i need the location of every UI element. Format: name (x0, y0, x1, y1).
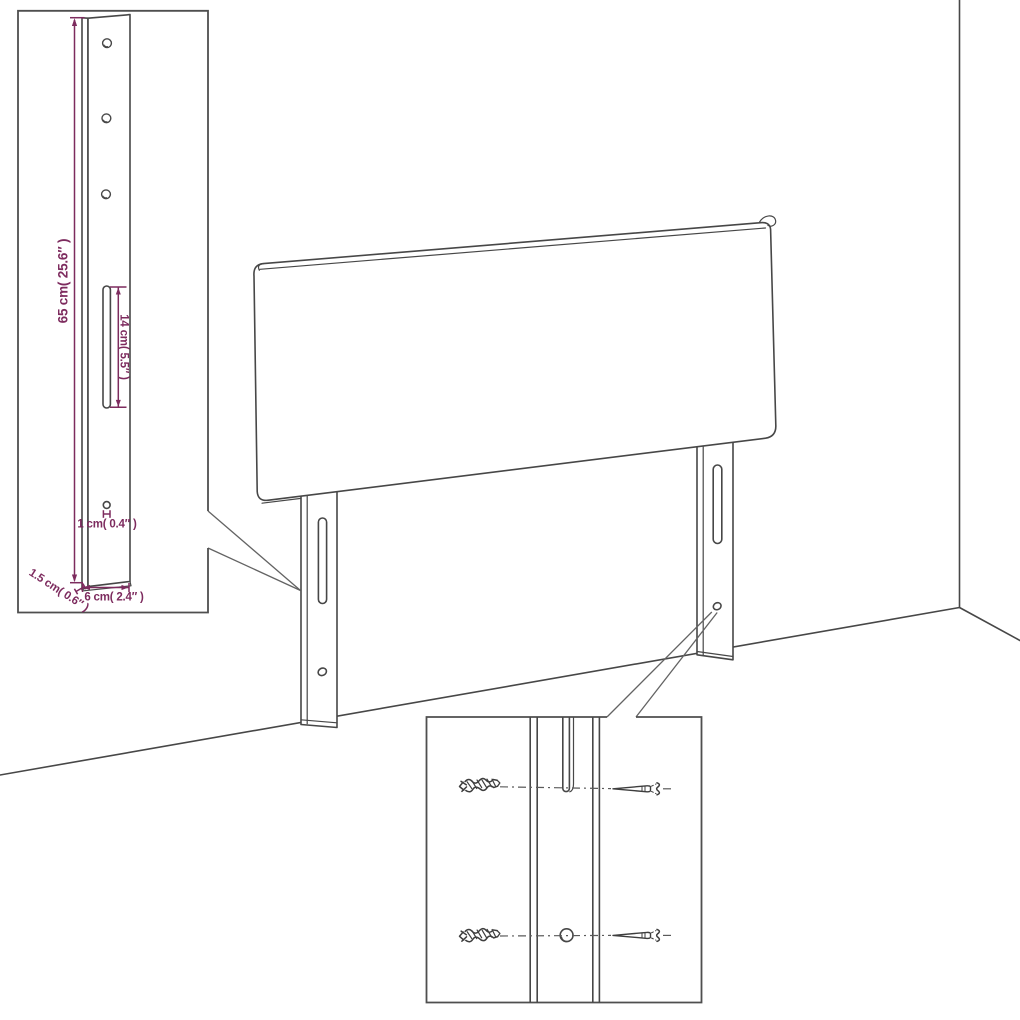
leg-detail-inset: 65 cm( 25.6″ ) 14 cm( 5.5″ ) 1 cm( 0.4″ … (18, 11, 208, 615)
right-leg (697, 433, 733, 660)
inset-leg-front-face (88, 15, 130, 587)
inset-leg-side-face (82, 18, 88, 590)
leg-inset-callout-lines (208, 511, 301, 591)
dim-leg-height-label: 65 cm( 25.6″ ) (56, 239, 71, 324)
mount-slot-side (570, 718, 574, 792)
floor-line-left (0, 608, 960, 776)
headboard-dimension-diagram: 65 cm( 25.6″ ) 14 cm( 5.5″ ) 1 cm( 0.4″ … (0, 0, 1020, 1020)
dim-slot-length-label: 14 cm( 5.5″ ) (117, 314, 129, 380)
mounting-detail-box (427, 717, 702, 1003)
diagram-canvas: 65 cm( 25.6″ ) 14 cm( 5.5″ ) 1 cm( 0.4″ … (0, 0, 1020, 1020)
dim-hole-width-label: 1 cm( 0.4″ ) (77, 519, 137, 531)
mount-leg-strip (530, 718, 599, 1002)
screw-icon-bottom (613, 929, 659, 941)
dim-leg-height: 65 cm( 25.6″ ) (56, 18, 85, 583)
floor-line-right (960, 608, 1020, 641)
leader-top (500, 787, 611, 789)
mounting-detail-inset (427, 717, 702, 1003)
leader-bottom (500, 935, 611, 936)
mount-slot (563, 718, 570, 792)
left-leg (301, 470, 337, 728)
wall-plug-icon-top (459, 777, 500, 793)
wall-plug-icon-bottom (459, 927, 500, 942)
screw-icon-top (613, 783, 659, 795)
dim-leg-width-label: 6 cm( 2.4″ ) (84, 592, 144, 604)
